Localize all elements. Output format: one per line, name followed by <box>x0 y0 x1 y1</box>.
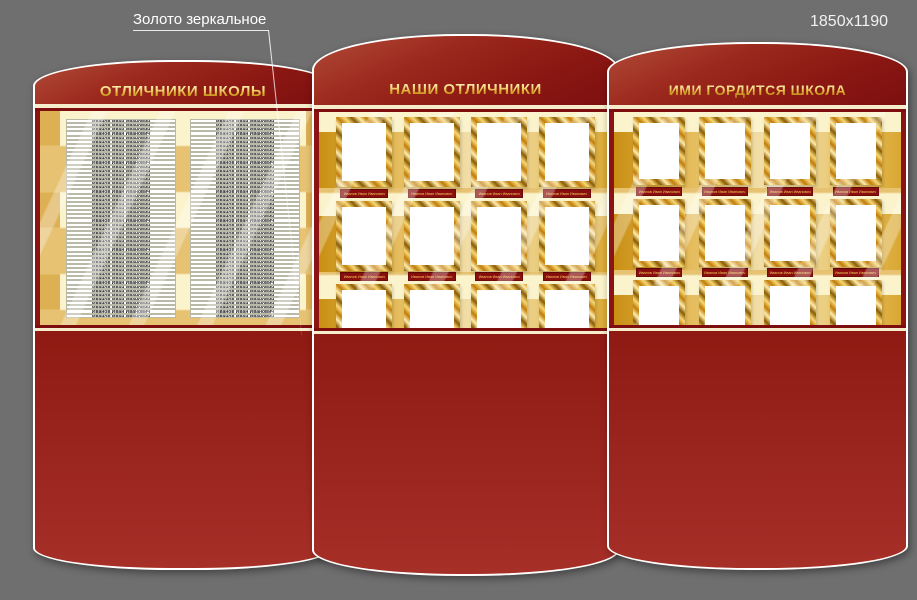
photo-name-plate: Иванов Иван Иванович <box>636 187 682 196</box>
photo-name-plate: Иванов Иван Иванович <box>543 272 591 281</box>
photo-frame <box>471 284 527 328</box>
name-strip: Иванов Иван Иванович <box>190 314 300 318</box>
photo-frame <box>699 117 751 185</box>
photo-frame <box>404 117 460 187</box>
photo-cell: Иванов Иван Иванович <box>699 199 751 278</box>
photo-cell: Иванов Иван Иванович <box>633 199 685 278</box>
name-strip: Иванов Иван Иванович <box>66 314 176 318</box>
photo-frame <box>699 280 751 325</box>
photo-name-plate: Иванов Иван Иванович <box>636 268 682 277</box>
photo-cell: Иванов Иван Иванович <box>699 117 751 196</box>
panel-school-proud-of-them: ИМИ ГОРДИТСЯ ШКОЛА Иванов Иван ИвановичИ… <box>607 42 908 570</box>
photo-frame <box>633 280 685 325</box>
photo-cell: Иванов Иван Иванович <box>699 280 751 325</box>
photo-name-plate: Иванов Иван Иванович <box>340 272 388 281</box>
photo-row: Иванов Иван ИвановичИванов Иван Иванович… <box>325 114 606 198</box>
photo-cell: Иванов Иван Иванович <box>633 117 685 196</box>
photo-frame <box>830 199 882 267</box>
photo-name-plate: Иванов Иван Иванович <box>475 272 523 281</box>
photo-cell: Иванов Иван Иванович <box>336 201 392 282</box>
panel-our-excellent-students: НАШИ ОТЛИЧНИКИ Иванов Иван ИвановичИвано… <box>312 34 619 576</box>
photo-frame <box>404 284 460 328</box>
photo-cell: Иванов Иван Иванович <box>471 284 527 328</box>
photo-name-plate: Иванов Иван Иванович <box>767 268 813 277</box>
panel-right-title: ИМИ ГОРДИТСЯ ШКОЛА <box>669 82 847 98</box>
panel-right-footer <box>609 331 906 568</box>
photo-name-plate: Иванов Иван Иванович <box>833 187 879 196</box>
photo-cell: Иванов Иван Иванович <box>764 199 816 278</box>
photo-frame <box>539 284 595 328</box>
photo-name-plate: Иванов Иван Иванович <box>408 272 456 281</box>
photo-frame <box>539 117 595 187</box>
photo-cell: Иванов Иван Иванович <box>336 284 392 328</box>
photo-cell: Иванов Иван Иванович <box>830 199 882 278</box>
material-note-underline <box>133 30 269 31</box>
name-strip-columns: Иванов Иван ИвановичИванов Иван Иванович… <box>40 111 326 325</box>
photo-cell: Иванов Иван Иванович <box>404 117 460 198</box>
photo-frame <box>336 284 392 328</box>
photo-cell: Иванов Иван Иванович <box>539 117 595 198</box>
photo-row: Иванов Иван ИвановичИванов Иван Иванович… <box>325 281 606 328</box>
photo-cell: Иванов Иван Иванович <box>336 117 392 198</box>
panel-left-footer <box>35 331 331 569</box>
photo-grid: Иванов Иван ИвановичИванов Иван Иванович… <box>614 112 901 325</box>
photo-name-plate: Иванов Иван Иванович <box>702 268 748 277</box>
photo-name-plate: Иванов Иван Иванович <box>833 268 879 277</box>
photo-row: Иванов Иван ИвановичИванов Иван Иванович… <box>620 277 895 325</box>
panel-school-excellent-students: ОТЛИЧНИКИ ШКОЛЫ Иванов Иван ИвановичИван… <box>33 60 333 570</box>
photo-frame <box>404 201 460 271</box>
panel-middle-footer <box>314 334 617 574</box>
photo-frame <box>471 201 527 271</box>
photo-frame <box>764 280 816 325</box>
photo-name-plate: Иванов Иван Иванович <box>475 189 523 198</box>
photo-cell: Иванов Иван Иванович <box>539 201 595 282</box>
photo-cell: Иванов Иван Иванович <box>404 201 460 282</box>
photo-frame <box>633 117 685 185</box>
material-note-label: Золото зеркальное <box>133 11 266 28</box>
photo-frame <box>830 280 882 325</box>
photo-grid: Иванов Иван ИвановичИванов Иван Иванович… <box>319 112 612 328</box>
photo-name-plate: Иванов Иван Иванович <box>543 189 591 198</box>
photo-frame <box>633 199 685 267</box>
photo-cell: Иванов Иван Иванович <box>404 284 460 328</box>
panel-left-header: ОТЛИЧНИКИ ШКОЛЫ <box>35 62 331 104</box>
photo-cell: Иванов Иван Иванович <box>764 117 816 196</box>
photo-row: Иванов Иван ИвановичИванов Иван Иванович… <box>325 198 606 282</box>
panel-middle-content: Иванов Иван ИвановичИванов Иван Иванович… <box>314 112 617 328</box>
photo-name-plate: Иванов Иван Иванович <box>702 187 748 196</box>
board-size-label: 1850x1190 <box>810 13 888 31</box>
photo-frame <box>764 199 816 267</box>
photo-row: Иванов Иван ИвановичИванов Иван Иванович… <box>620 196 895 278</box>
photo-row: Иванов Иван ИвановичИванов Иван Иванович… <box>620 114 895 196</box>
photo-frame <box>830 117 882 185</box>
photo-frame <box>336 117 392 187</box>
photo-frame <box>699 199 751 267</box>
photo-frame <box>471 117 527 187</box>
panel-middle-header: НАШИ ОТЛИЧНИКИ <box>314 36 617 105</box>
panel-right-header: ИМИ ГОРДИТСЯ ШКОЛА <box>609 44 906 105</box>
panel-right-content: Иванов Иван ИвановичИванов Иван Иванович… <box>609 112 906 325</box>
photo-cell: Иванов Иван Иванович <box>471 201 527 282</box>
panel-middle-title: НАШИ ОТЛИЧНИКИ <box>389 81 542 98</box>
photo-cell: Иванов Иван Иванович <box>471 117 527 198</box>
photo-frame <box>336 201 392 271</box>
photo-cell: Иванов Иван Иванович <box>830 117 882 196</box>
photo-cell: Иванов Иван Иванович <box>633 280 685 325</box>
photo-cell: Иванов Иван Иванович <box>539 284 595 328</box>
photo-name-plate: Иванов Иван Иванович <box>767 187 813 196</box>
photo-cell: Иванов Иван Иванович <box>830 280 882 325</box>
panel-left-title: ОТЛИЧНИКИ ШКОЛЫ <box>100 83 266 100</box>
photo-name-plate: Иванов Иван Иванович <box>408 189 456 198</box>
photo-frame <box>764 117 816 185</box>
photo-name-plate: Иванов Иван Иванович <box>340 189 388 198</box>
panel-left-content: Иванов Иван ИвановичИванов Иван Иванович… <box>35 111 331 325</box>
photo-frame <box>539 201 595 271</box>
name-strip-column: Иванов Иван ИвановичИванов Иван Иванович… <box>66 119 176 318</box>
photo-cell: Иванов Иван Иванович <box>764 280 816 325</box>
name-strip-column: Иванов Иван ИвановичИванов Иван Иванович… <box>190 119 300 318</box>
